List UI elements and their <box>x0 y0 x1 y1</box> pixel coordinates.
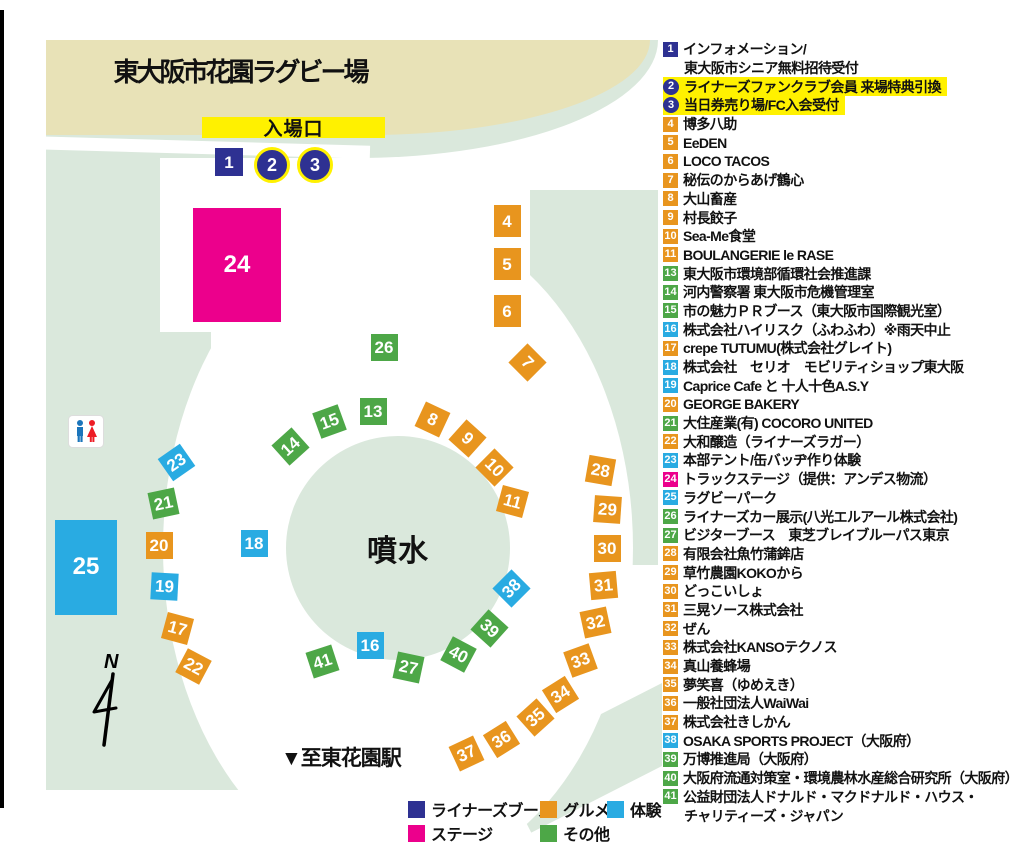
left-border-strip <box>0 10 4 808</box>
map-marker-21: 21 <box>147 487 179 519</box>
booth-name-9: 村長餃子 <box>683 208 737 228</box>
venue-map: 東大阪市花園ラグビー場 入場口 噴水 N <box>0 0 662 864</box>
booth-number-badge-13: 13 <box>663 266 678 281</box>
booth-list-item-27: 27ビジターブース 東芝ブレイブルーパス東京 <box>663 526 949 545</box>
booth-list-item-40: 40大阪府流通対策室・環境農林水産総合研究所（大阪府） <box>663 769 1018 788</box>
booth-list-item-2: 2ライナーズファンクラブ会員 来場特典引換 <box>663 77 947 96</box>
booth-number-badge-34: 34 <box>663 659 678 674</box>
booth-number-badge-41: 41 <box>663 789 678 804</box>
booth-list-item-24: 24トラックステージ（提供：アンデス物流） <box>663 470 936 489</box>
map-marker-number: 17 <box>166 617 189 638</box>
map-marker-20: 20 <box>146 532 173 559</box>
entrance-banner: 入場口 <box>202 117 385 138</box>
booth-list-item-36: 36一般社団法人WaiWai <box>663 694 809 713</box>
booth-list-item-5: 5EeDEN <box>663 133 727 152</box>
booth-list-item-3: 3当日券売り場/FC入会受付 <box>663 96 845 115</box>
booth-list-item-20: 20GEORGE BAKERY <box>663 395 799 414</box>
map-marker-number: 5 <box>502 256 511 273</box>
map-marker-number: 6 <box>502 303 511 320</box>
map-marker-number: 22 <box>181 654 206 678</box>
legend-item-other: その他 <box>540 821 610 845</box>
booth-name-27: ビジターブース 東芝ブレイブルーパス東京 <box>683 525 949 545</box>
booth-name-40: 大阪府流通対策室・環境農林水産総合研究所（大阪府） <box>683 768 1018 788</box>
map-marker-3: 3 <box>297 147 333 183</box>
booth-list-item-35: 35夢笑喜（ゆめえき） <box>663 675 803 694</box>
booth-list-item-34: 34真山養蜂場 <box>663 657 750 676</box>
booth-list-item-25: 25ラグビーパーク <box>663 489 777 508</box>
booth-list-item-41-line2: チャリティーズ・ジャパン <box>663 806 843 825</box>
booth-number-badge-3: 3 <box>663 97 679 113</box>
booth-name-33: 株式会社KANSOテクノス <box>683 637 837 657</box>
booth-list: 1インフォメーション/東大阪市シニア無料招待受付2ライナーズファンクラブ会員 来… <box>663 40 1023 825</box>
booth-name-5: EeDEN <box>683 135 727 151</box>
booth-name-4: 博多八助 <box>683 114 737 134</box>
booth-list-item-23: 23本部テント/缶バッヂ作り体験 <box>663 451 861 470</box>
map-marker-number: 11 <box>501 490 523 511</box>
booth-name-39: 万博推進局（大阪府） <box>683 749 817 769</box>
map-marker-6: 6 <box>494 295 521 327</box>
map-marker-number: 36 <box>488 727 513 751</box>
booth-list-item-6: 6LOCO TACOS <box>663 152 769 171</box>
booth-list-item-15: 15市の魅力ＰＲブース（東大阪市国際観光室） <box>663 302 950 321</box>
booth-list-item-32: 32ぜん <box>663 619 710 638</box>
booth-number-badge-26: 26 <box>663 509 678 524</box>
map-marker-number: 23 <box>163 450 188 475</box>
booth-name-1: インフォメーション/ <box>683 39 806 59</box>
booth-number-badge-7: 7 <box>663 173 678 188</box>
map-marker-number: 28 <box>589 460 611 480</box>
booth-name-22: 大和醸造（ライナーズラガー） <box>683 432 870 452</box>
booth-name-25: ラグビーパーク <box>683 488 777 508</box>
legend-item-taiken: 体験 <box>607 797 661 821</box>
map-marker-32: 32 <box>579 606 611 638</box>
booth-name-37: 株式会社きしかん <box>683 712 790 732</box>
booth-name-14: 河内警察署 東大阪市危機管理室 <box>683 282 874 302</box>
booth-number-badge-16: 16 <box>663 322 678 337</box>
booth-list-item-10: 10Sea-Me食堂 <box>663 227 755 246</box>
booth-number-badge-25: 25 <box>663 490 678 505</box>
booth-name-23: 本部テント/缶バッヂ作り体験 <box>683 450 861 470</box>
booth-name-35: 夢笑喜（ゆめえき） <box>683 675 803 695</box>
booth-name-41: 公益財団法人ドナルド・マクドナルド・ハウス・ <box>683 787 978 807</box>
map-marker-26: 26 <box>371 334 398 361</box>
booth-number-badge-17: 17 <box>663 341 678 356</box>
booth-name-26: ライナーズカー展示(八光エルアール株式会社) <box>683 507 957 527</box>
legend-item-liners: ライナーズブース <box>408 797 553 821</box>
map-marker-number: 37 <box>454 741 478 764</box>
booth-number-badge-30: 30 <box>663 584 678 599</box>
map-marker-number: 26 <box>375 339 394 356</box>
legend-label-other: その他 <box>563 821 610 845</box>
map-marker-24: 24 <box>193 208 281 322</box>
map-marker-27: 27 <box>392 651 424 683</box>
map-marker-number: 1 <box>224 154 233 171</box>
booth-number-badge-19: 19 <box>663 378 678 393</box>
north-compass: N <box>86 650 126 750</box>
legend-swatch-taiken <box>607 801 624 818</box>
booth-name-7: 秘伝のからあげ鶴心 <box>683 170 804 190</box>
booth-number-badge-38: 38 <box>663 733 678 748</box>
booth-number-badge-1: 1 <box>663 42 678 57</box>
booth-name-6: LOCO TACOS <box>683 153 769 169</box>
map-marker-number: 9 <box>458 429 476 448</box>
booth-list-item-4: 4博多八助 <box>663 115 737 134</box>
booth-name-28: 有限会社魚竹蒲鉾店 <box>683 544 804 564</box>
booth-list-item-29: 29草竹農園KOKOから <box>663 563 803 582</box>
map-marker-number: 3 <box>310 156 320 174</box>
booth-list-item-1-line2: 東大阪市シニア無料招待受付 <box>663 59 858 78</box>
booth-name-11: BOULANGERIE le RASE <box>683 247 833 263</box>
booth-name-10: Sea-Me食堂 <box>683 226 755 246</box>
map-marker-13: 13 <box>360 398 387 425</box>
booth-number-badge-15: 15 <box>663 303 678 318</box>
booth-number-badge-14: 14 <box>663 285 678 300</box>
map-marker-number: 25 <box>73 555 100 579</box>
map-marker-2: 2 <box>254 147 290 183</box>
booth-number-badge-24: 24 <box>663 472 678 487</box>
booth-name-34: 真山養蜂場 <box>683 656 750 676</box>
booth-list-item-28: 28有限会社魚竹蒲鉾店 <box>663 545 804 564</box>
booth-name-38: OSAKA SPORTS PROJECT（大阪府） <box>683 731 920 751</box>
booth-number-badge-8: 8 <box>663 191 678 206</box>
booth-name-41-line2: チャリティーズ・ジャパン <box>684 806 843 826</box>
legend-label-liners: ライナーズブース <box>431 797 553 821</box>
booth-number-badge-39: 39 <box>663 752 678 767</box>
booth-number-badge-22: 22 <box>663 434 678 449</box>
booth-name-15: 市の魅力ＰＲブース（東大阪市国際観光室） <box>683 301 950 321</box>
booth-number-badge-2: 2 <box>663 79 679 95</box>
map-marker-number: 7 <box>518 353 537 372</box>
booth-list-item-11: 11BOULANGERIE le RASE <box>663 246 833 265</box>
booth-list-item-21: 21大住産業(有) COCORO UNITED <box>663 414 873 433</box>
booth-name-24: トラックステージ（提供：アンデス物流） <box>683 469 936 489</box>
map-marker-18: 18 <box>241 530 268 557</box>
booth-list-item-22: 22大和醸造（ライナーズラガー） <box>663 432 870 451</box>
map-marker-number: 31 <box>593 576 613 595</box>
booth-name-21: 大住産業(有) COCORO UNITED <box>683 413 873 433</box>
restroom-icon <box>68 415 104 453</box>
map-marker-number: 32 <box>584 612 606 633</box>
booth-number-badge-33: 33 <box>663 640 678 655</box>
booth-number-badge-6: 6 <box>663 154 678 169</box>
booth-number-badge-29: 29 <box>663 565 678 580</box>
map-marker-28: 28 <box>584 454 615 485</box>
map-marker-number: 35 <box>522 704 547 729</box>
map-marker-number: 14 <box>277 433 302 458</box>
legend-label-taiken: 体験 <box>630 797 661 821</box>
grass-area-left-upper <box>46 158 160 332</box>
booth-list-item-31: 31三晃ソース株式会社 <box>663 601 803 620</box>
legend-item-gourmet: グルメ <box>540 797 610 821</box>
booth-list-item-19: 19Caprice Cafe と 十人十色A.S.Y <box>663 376 869 395</box>
booth-name-2: ライナーズファンクラブ会員 来場特典引換 <box>684 77 941 97</box>
booth-list-item-33: 33株式会社KANSOテクノス <box>663 638 837 657</box>
booth-list-item-13: 13東大阪市環境部循環社会推進課 <box>663 264 871 283</box>
map-marker-4: 4 <box>494 205 521 237</box>
legend-label-gourmet: グルメ <box>563 797 610 821</box>
map-marker-number: 39 <box>476 615 501 640</box>
map-marker-19: 19 <box>150 572 178 600</box>
booth-number-badge-37: 37 <box>663 715 678 730</box>
booth-number-badge-31: 31 <box>663 602 678 617</box>
map-marker-number: 40 <box>446 642 471 666</box>
booth-list-item-9: 9村長餃子 <box>663 208 737 227</box>
booth-list-item-39: 39万博推進局（大阪府） <box>663 750 817 769</box>
booth-name-30: どっこいしょ <box>683 581 763 601</box>
map-marker-number: 27 <box>397 657 419 678</box>
legend-swatch-gourmet <box>540 801 557 818</box>
map-marker-5: 5 <box>494 248 521 280</box>
booth-name-13: 東大阪市環境部循環社会推進課 <box>683 264 871 284</box>
map-marker-number: 18 <box>245 535 264 552</box>
booth-list-item-8: 8大山畜産 <box>663 190 737 209</box>
map-marker-number: 10 <box>481 454 506 479</box>
legend-label-stage: ステージ <box>431 821 493 845</box>
legend-swatch-liners <box>408 801 425 818</box>
map-marker-number: 16 <box>361 637 380 654</box>
map-marker-number: 24 <box>224 253 251 277</box>
booth-name-29: 草竹農園KOKOから <box>683 563 803 583</box>
booth-name-16: 株式会社ハイリスク（ふわふわ）※雨天中止 <box>683 320 950 340</box>
booth-name-17: crepe TUTUMU(株式会社グレイト) <box>683 338 891 358</box>
map-marker-number: 34 <box>547 682 572 706</box>
booth-name-36: 一般社団法人WaiWai <box>683 693 809 713</box>
booth-name-8: 大山畜産 <box>683 189 737 209</box>
map-marker-number: 41 <box>310 650 333 672</box>
map-marker-number: 38 <box>498 575 523 600</box>
map-marker-number: 21 <box>152 493 174 514</box>
booth-list-item-7: 7秘伝のからあげ鶴心 <box>663 171 804 190</box>
booth-number-badge-21: 21 <box>663 416 678 431</box>
map-marker-1: 1 <box>215 148 243 176</box>
booth-number-badge-5: 5 <box>663 135 678 150</box>
booth-number-badge-40: 40 <box>663 771 678 786</box>
booth-number-badge-4: 4 <box>663 117 678 132</box>
map-marker-16: 16 <box>357 632 384 659</box>
booth-name-32: ぜん <box>683 619 710 639</box>
map-marker-number: 20 <box>150 537 169 554</box>
booth-number-badge-36: 36 <box>663 696 678 711</box>
booth-name-1-line2: 東大阪市シニア無料招待受付 <box>684 58 858 78</box>
booth-name-19: Caprice Cafe と 十人十色A.S.Y <box>683 376 869 396</box>
booth-list-item-18: 18株式会社 セリオ モビリティショップ東大阪 <box>663 358 964 377</box>
map-marker-number: 2 <box>267 156 277 174</box>
map-marker-number: 8 <box>424 409 440 428</box>
booth-name-20: GEORGE BAKERY <box>683 396 799 412</box>
booth-number-badge-9: 9 <box>663 210 678 225</box>
booth-number-badge-18: 18 <box>663 360 678 375</box>
booth-list-item-14: 14河内警察署 東大阪市危機管理室 <box>663 283 874 302</box>
legend-swatch-stage <box>408 825 425 842</box>
booth-list-item-17: 17crepe TUTUMU(株式会社グレイト) <box>663 339 891 358</box>
fountain-label: 噴水 <box>367 526 429 570</box>
map-marker-25: 25 <box>55 520 117 615</box>
booth-number-badge-10: 10 <box>663 229 678 244</box>
map-marker-number: 13 <box>364 403 383 420</box>
map-marker-number: 30 <box>598 540 617 557</box>
legend-item-stage: ステージ <box>408 821 493 845</box>
map-marker-number: 19 <box>154 577 174 595</box>
map-marker-number: 33 <box>568 649 592 671</box>
booth-list-item-38: 38OSAKA SPORTS PROJECT（大阪府） <box>663 731 920 750</box>
booth-number-badge-20: 20 <box>663 397 678 412</box>
map-title: 東大阪市花園ラグビー場 <box>110 52 370 89</box>
booth-list-item-41: 41公益財団法人ドナルド・マクドナルド・ハウス・ <box>663 788 978 807</box>
map-marker-number: 4 <box>502 213 511 230</box>
booth-number-badge-11: 11 <box>663 247 678 262</box>
booth-list-item-1: 1インフォメーション/ <box>663 40 806 59</box>
booth-number-badge-28: 28 <box>663 546 678 561</box>
map-marker-number: 29 <box>597 500 617 518</box>
map-marker-30: 30 <box>594 535 621 562</box>
booth-list-item-16: 16株式会社ハイリスク（ふわふわ）※雨天中止 <box>663 320 950 339</box>
booth-list-item-26: 26ライナーズカー展示(八光エルアール株式会社) <box>663 507 957 526</box>
booth-name-18: 株式会社 セリオ モビリティショップ東大阪 <box>683 357 964 377</box>
booth-number-badge-27: 27 <box>663 528 678 543</box>
booth-name-31: 三晃ソース株式会社 <box>683 600 803 620</box>
booth-name-3: 当日券売り場/FC入会受付 <box>684 95 839 115</box>
booth-list-item-37: 37株式会社きしかん <box>663 713 790 732</box>
map-marker-31: 31 <box>588 570 617 599</box>
booth-list-item-30: 30どっこいしょ <box>663 582 763 601</box>
north-label: N <box>104 651 119 673</box>
map-marker-number: 15 <box>317 410 341 432</box>
booth-number-badge-32: 32 <box>663 621 678 636</box>
booth-number-badge-23: 23 <box>663 453 678 468</box>
event-map-page: 東大阪市花園ラグビー場 入場口 噴水 N <box>0 0 1024 864</box>
station-direction-label: ▼至東花園駅 <box>281 742 401 772</box>
legend-swatch-other <box>540 825 557 842</box>
map-marker-29: 29 <box>593 495 622 524</box>
booth-number-badge-35: 35 <box>663 677 678 692</box>
